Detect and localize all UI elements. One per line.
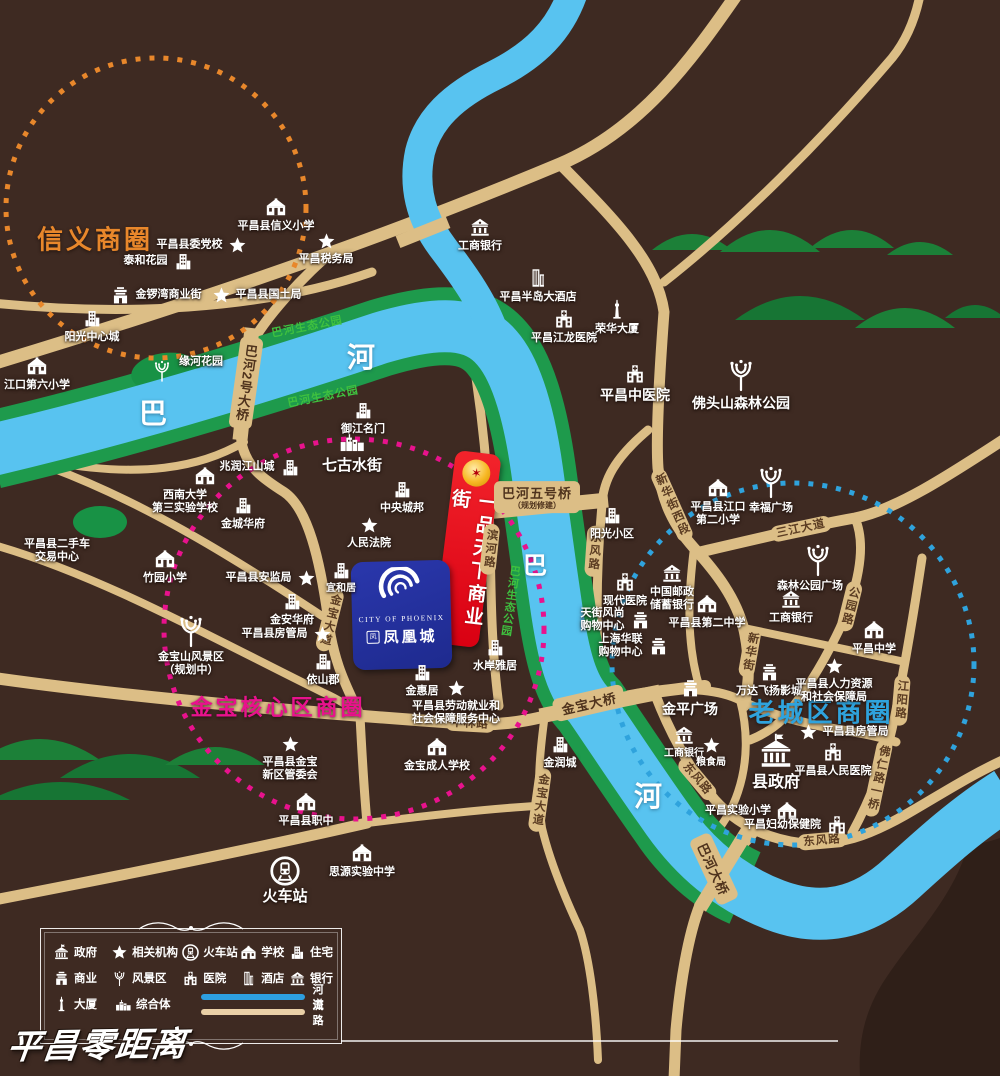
poi-label: 金城华府 (221, 518, 265, 531)
poi-label: 平昌税务局 (299, 253, 354, 266)
poi-label: 金宝山风景区 （规划中） (158, 651, 224, 677)
legend-line-samples: 河流道路 (201, 989, 333, 1019)
legend-item: 医院 (182, 970, 240, 987)
legend-item-label: 火车站 (203, 944, 238, 960)
hospital-icon (826, 814, 848, 836)
legend-row: 政府相关机构火车站学校住宅 (53, 939, 333, 965)
poi-label: 平昌县二手车 交易中心 (24, 538, 90, 564)
gold-emblem-icon: ✶ (461, 458, 492, 488)
star-icon (297, 569, 316, 588)
legend-rows: 政府相关机构火车站学校住宅商业风景区医院酒店银行大厦综合体河流道路 (53, 939, 333, 1017)
poi-label: 平昌县房管局 (823, 725, 889, 738)
legend-item-label: 商业 (74, 970, 97, 986)
poi-label: 七古水街 (322, 457, 382, 475)
poi-label: 金安华府 (270, 614, 314, 627)
poi-label: 平昌中学 (852, 643, 896, 656)
road-line-sample (201, 1009, 305, 1015)
school-icon (426, 736, 448, 758)
legend-item: 学校 (240, 944, 289, 961)
poi-label: 上海华联 购物中心 (599, 633, 643, 659)
residence-icon (485, 637, 506, 658)
poi-label: 平昌县金宝 新区管委会 (263, 756, 318, 782)
school-icon (194, 465, 216, 487)
poi-label: 中央城邦 (380, 502, 424, 515)
poi-label: 缘河花园 (179, 355, 223, 368)
poi-label: 万达飞扬影城 (736, 685, 802, 698)
complex-icon (115, 996, 132, 1013)
star-icon (447, 679, 466, 698)
star-icon (111, 944, 128, 961)
bank-icon (661, 562, 683, 584)
legend-item-label: 住宅 (310, 944, 333, 960)
zone-title: 信义商圈 (37, 220, 153, 257)
tree-icon (753, 464, 789, 500)
phoenix-logo-icon (377, 566, 424, 613)
poi-label: 平昌县第二中学 (669, 617, 746, 630)
poi-label: 竹园小学 (143, 572, 187, 585)
commerce-icon (759, 662, 780, 683)
legend-item-label: 综合体 (136, 996, 171, 1012)
bank-icon (289, 970, 306, 987)
phoenix-seal-icon: 凤 (366, 631, 379, 644)
poi-label: 西南大学 第三实验学校 (152, 489, 218, 515)
residence-icon (282, 591, 303, 612)
train-icon (182, 944, 199, 961)
poi-label: 人民法院 (347, 537, 391, 550)
tree-icon (111, 970, 128, 987)
river-name-label: 巴 (139, 392, 167, 432)
legend-item: 酒店 (240, 970, 289, 987)
river-name-label: 巴 (523, 546, 547, 581)
city-of-phoenix-block: CITY OF PHOENIX 凤 凤凰城 (351, 560, 453, 671)
poi-label: 中国邮政 储蓄银行 (650, 586, 694, 612)
poi-label: 火车站 (262, 888, 307, 906)
legend-item-label: 医院 (203, 970, 226, 986)
hospital-icon (624, 363, 646, 385)
legend-line-row: 道路 (201, 1004, 333, 1019)
poi-label: 思源实验中学 (329, 866, 395, 879)
poi-label: 天街风尚 购物中心 (581, 607, 625, 633)
legend-item: 风景区 (111, 970, 182, 987)
legend-item-label: 大厦 (74, 996, 97, 1012)
legend-item: 住宅 (289, 944, 333, 961)
legend-item-label: 相关机构 (132, 944, 178, 960)
legend-item-label: 酒店 (261, 970, 284, 986)
government-icon (53, 944, 70, 961)
commerce-icon (110, 285, 131, 306)
school-icon (863, 619, 885, 641)
star-icon (212, 286, 231, 305)
star-icon (825, 657, 844, 676)
star-icon (799, 723, 818, 742)
poi-label: 幸福广场 (749, 502, 793, 515)
hospital-icon (614, 571, 636, 593)
school-icon (26, 355, 48, 377)
bank-icon (469, 216, 491, 238)
river-name-label: 河 (634, 775, 662, 815)
train-icon (270, 856, 300, 886)
bank-icon (780, 588, 802, 610)
commerce-icon (648, 636, 669, 657)
poi-label: 荣华大厦 (595, 323, 639, 336)
residence-icon (602, 505, 623, 526)
star-icon (313, 625, 332, 644)
complex-icon (339, 428, 366, 455)
tower-icon (53, 996, 70, 1013)
star-icon (281, 735, 300, 754)
legend-item-label: 风景区 (132, 970, 167, 986)
poi-label: 金平广场 (662, 701, 718, 718)
hospital-icon (553, 308, 575, 330)
poi-label: 平昌实验小学 (705, 804, 771, 817)
poi-label: 金润城 (544, 757, 577, 770)
poi-label: 平昌县国土局 (236, 288, 302, 301)
legend-item-label: 学校 (261, 944, 284, 960)
poi-label: 阳光小区 (590, 528, 634, 541)
map-art (0, 0, 1000, 1076)
bridge-label-subtext: （规划修建） (502, 502, 572, 511)
poi-label: 平昌县安监局 (226, 571, 292, 584)
poi-label: 泰和花园 (124, 254, 168, 267)
river-name-label: 河 (347, 336, 375, 376)
poi-label: 平昌半岛大酒店 (500, 291, 577, 304)
residence-icon (233, 495, 254, 516)
poi-label: 平昌县人力资源 和社会保障局 (796, 678, 873, 704)
legend-item-label: 政府 (74, 944, 97, 960)
star-icon (228, 236, 247, 255)
school-icon (154, 548, 176, 570)
residence-icon (353, 400, 374, 421)
star-icon (702, 736, 721, 755)
residence-icon (313, 651, 334, 672)
residence-icon (550, 734, 571, 755)
star-icon (360, 516, 379, 535)
poi-label: 阳光中心城 (65, 331, 120, 344)
residence-icon (289, 944, 306, 961)
zone-title: 金宝核心区商圈 (190, 690, 365, 722)
residence-icon (173, 251, 194, 272)
school-icon (351, 842, 373, 864)
hospital-icon (822, 741, 844, 763)
legend-item: 大厦 (53, 996, 115, 1013)
bridge-name-label: 巴河五号桥（规划修建） (494, 481, 580, 513)
poi-label: 平昌中医院 (600, 387, 670, 404)
school-icon (240, 944, 257, 961)
hospital-icon (182, 970, 199, 987)
poi-label: 江口第六小学 (4, 379, 70, 392)
residence-icon (412, 662, 433, 683)
poi-label: 平昌县职中 (279, 815, 334, 828)
poi-label: 粮食局 (696, 757, 726, 769)
star-icon (317, 232, 336, 251)
commerce-icon (53, 970, 70, 987)
poi-label: 工商银行 (458, 240, 502, 253)
phoenix-cn-title: 凤凰城 (383, 625, 438, 647)
school-icon (265, 196, 287, 218)
poi-label: 平昌江龙医院 (531, 332, 597, 345)
legend-line-label: 道路 (313, 996, 333, 1028)
poi-label: 平昌县人民医院 (795, 765, 872, 778)
poi-label: 金锣湾商业街 (136, 288, 202, 301)
school-icon (295, 791, 317, 813)
watermark: 平昌零距离 (5, 1016, 191, 1068)
tree-icon (173, 613, 209, 649)
legend-item: 商业 (53, 970, 111, 987)
poi-label: 金惠居 (406, 685, 439, 698)
legend-item: 综合体 (115, 996, 191, 1013)
legend-tail-line (341, 1040, 838, 1042)
residence-icon (82, 308, 103, 329)
legend-item: 相关机构 (111, 944, 182, 961)
residence-icon (392, 479, 413, 500)
legend-row: 大厦综合体河流道路 (53, 991, 333, 1017)
bank-icon (673, 724, 695, 746)
legend-flourish-top (136, 920, 246, 937)
phoenix-en-title: CITY OF PHOENIX (358, 613, 444, 624)
legend-item: 政府 (53, 944, 111, 961)
school-icon (707, 477, 729, 499)
tree-icon (800, 542, 836, 578)
legend-item: 火车站 (182, 944, 240, 961)
residence-icon (280, 457, 301, 478)
poi-label: 县政府 (752, 773, 800, 792)
poi-label: 平昌县信义小学 (238, 220, 315, 233)
river-line-sample (201, 994, 305, 1000)
residence-icon (331, 560, 352, 581)
park-small (73, 506, 127, 538)
poi-label: 佛头山森林公园 (692, 395, 790, 412)
poi-label: 工商银行 (769, 612, 813, 625)
poi-label: 平昌妇幼保健院 (744, 818, 821, 831)
map-canvas: ✶ 一品天下商业街 CITY OF PHOENIX 凤 凤凰城 政府相关机构火车… (0, 0, 1000, 1076)
poi-label: 金宝成人学校 (404, 760, 470, 773)
legend-row: 商业风景区医院酒店银行 (53, 965, 333, 991)
commerce-icon (680, 678, 701, 699)
poi-label: 平昌县江口 第二小学 (691, 501, 746, 527)
hotel-icon (527, 267, 549, 289)
poi-label: 依山郡 (307, 674, 340, 687)
tree-icon (723, 357, 759, 393)
commerce-icon (630, 610, 651, 631)
hotel-icon (240, 970, 257, 987)
poi-label: 兆润江山城 (220, 460, 275, 473)
bridge-label-text: 巴河五号桥 (502, 486, 572, 501)
tree-icon (150, 359, 174, 383)
school-icon (696, 593, 718, 615)
poi-label: 宜和居 (326, 583, 356, 595)
tower-icon (606, 299, 628, 321)
government-icon (757, 733, 795, 771)
poi-label: 平昌县劳动就业和 社会保障服务中心 (412, 700, 500, 726)
poi-label: 水岸雅居 (473, 660, 517, 673)
poi-label: 平昌县房管局 (242, 627, 308, 640)
